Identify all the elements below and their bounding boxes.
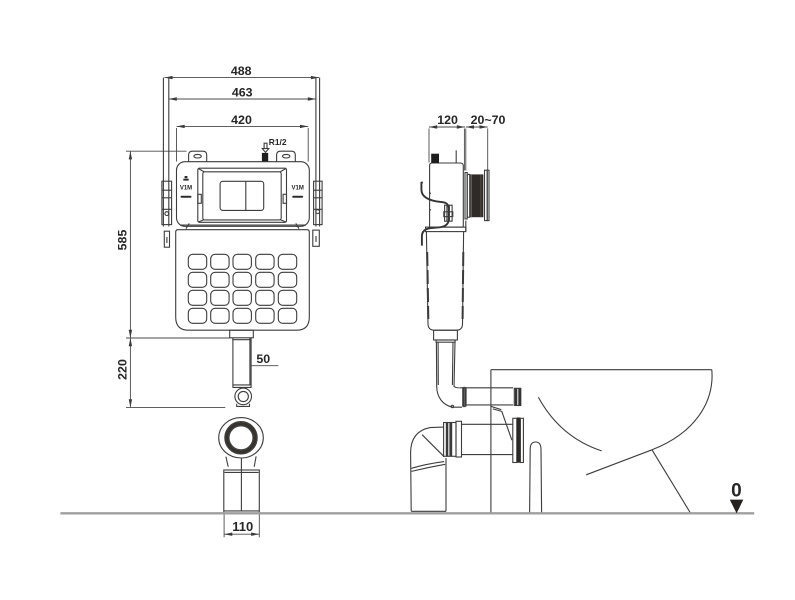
svg-text:120: 120 xyxy=(437,113,458,127)
svg-text:50: 50 xyxy=(256,352,270,366)
svg-text:463: 463 xyxy=(232,85,253,99)
svg-text:20~70: 20~70 xyxy=(471,113,506,127)
svg-text:420: 420 xyxy=(231,113,252,127)
svg-text:V1M: V1M xyxy=(292,185,304,191)
svg-text:220: 220 xyxy=(116,359,130,380)
svg-text:V1M: V1M xyxy=(180,185,192,191)
svg-text:110: 110 xyxy=(232,519,253,534)
svg-text:488: 488 xyxy=(231,64,252,78)
svg-text:R1/2: R1/2 xyxy=(269,137,287,147)
svg-text:0: 0 xyxy=(731,480,742,501)
svg-text:585: 585 xyxy=(116,230,130,251)
